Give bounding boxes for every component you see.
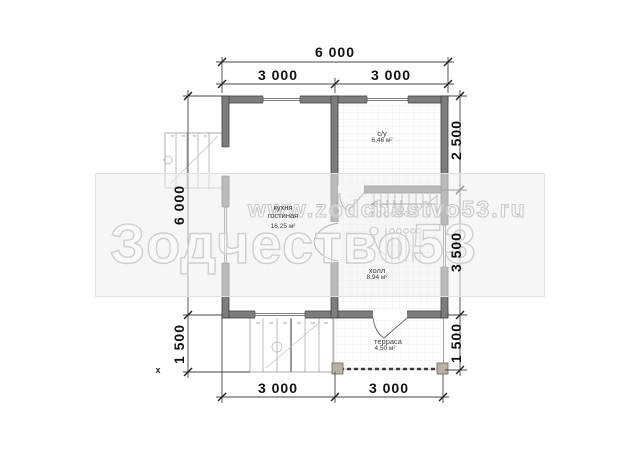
room-label-kitchen-2: гостиная [248,212,318,220]
dim-top-right: 3 000 [356,68,426,82]
dim-right-middle: 3 500 [449,217,463,287]
dim-bottom-left: 3 000 [243,381,313,395]
dim-left-height: 6 000 [172,170,186,240]
room-area-kitchen: 16,25 м² [248,224,318,231]
room-area-hall: 8,94 м² [347,275,407,282]
corner-marker: x [152,366,164,375]
floor-plan-page: www.zodchestvo53.ru Зодчество53 6 000 3 … [0,0,640,470]
floor-plan-drawing [0,0,640,470]
dim-right-bottom: 1 500 [449,308,463,378]
dim-top-left: 3 000 [243,68,313,82]
dim-left-porch: 1 500 [172,309,186,379]
dim-bottom-right: 3 000 [354,381,424,395]
room-area-terrace: 4,50 м² [355,346,415,353]
dim-right-top: 2 500 [449,105,463,175]
dim-top-total: 6 000 [300,45,370,59]
room-area-bathroom: 6,46 м² [352,138,412,145]
entrance-porch-steps [250,318,333,372]
